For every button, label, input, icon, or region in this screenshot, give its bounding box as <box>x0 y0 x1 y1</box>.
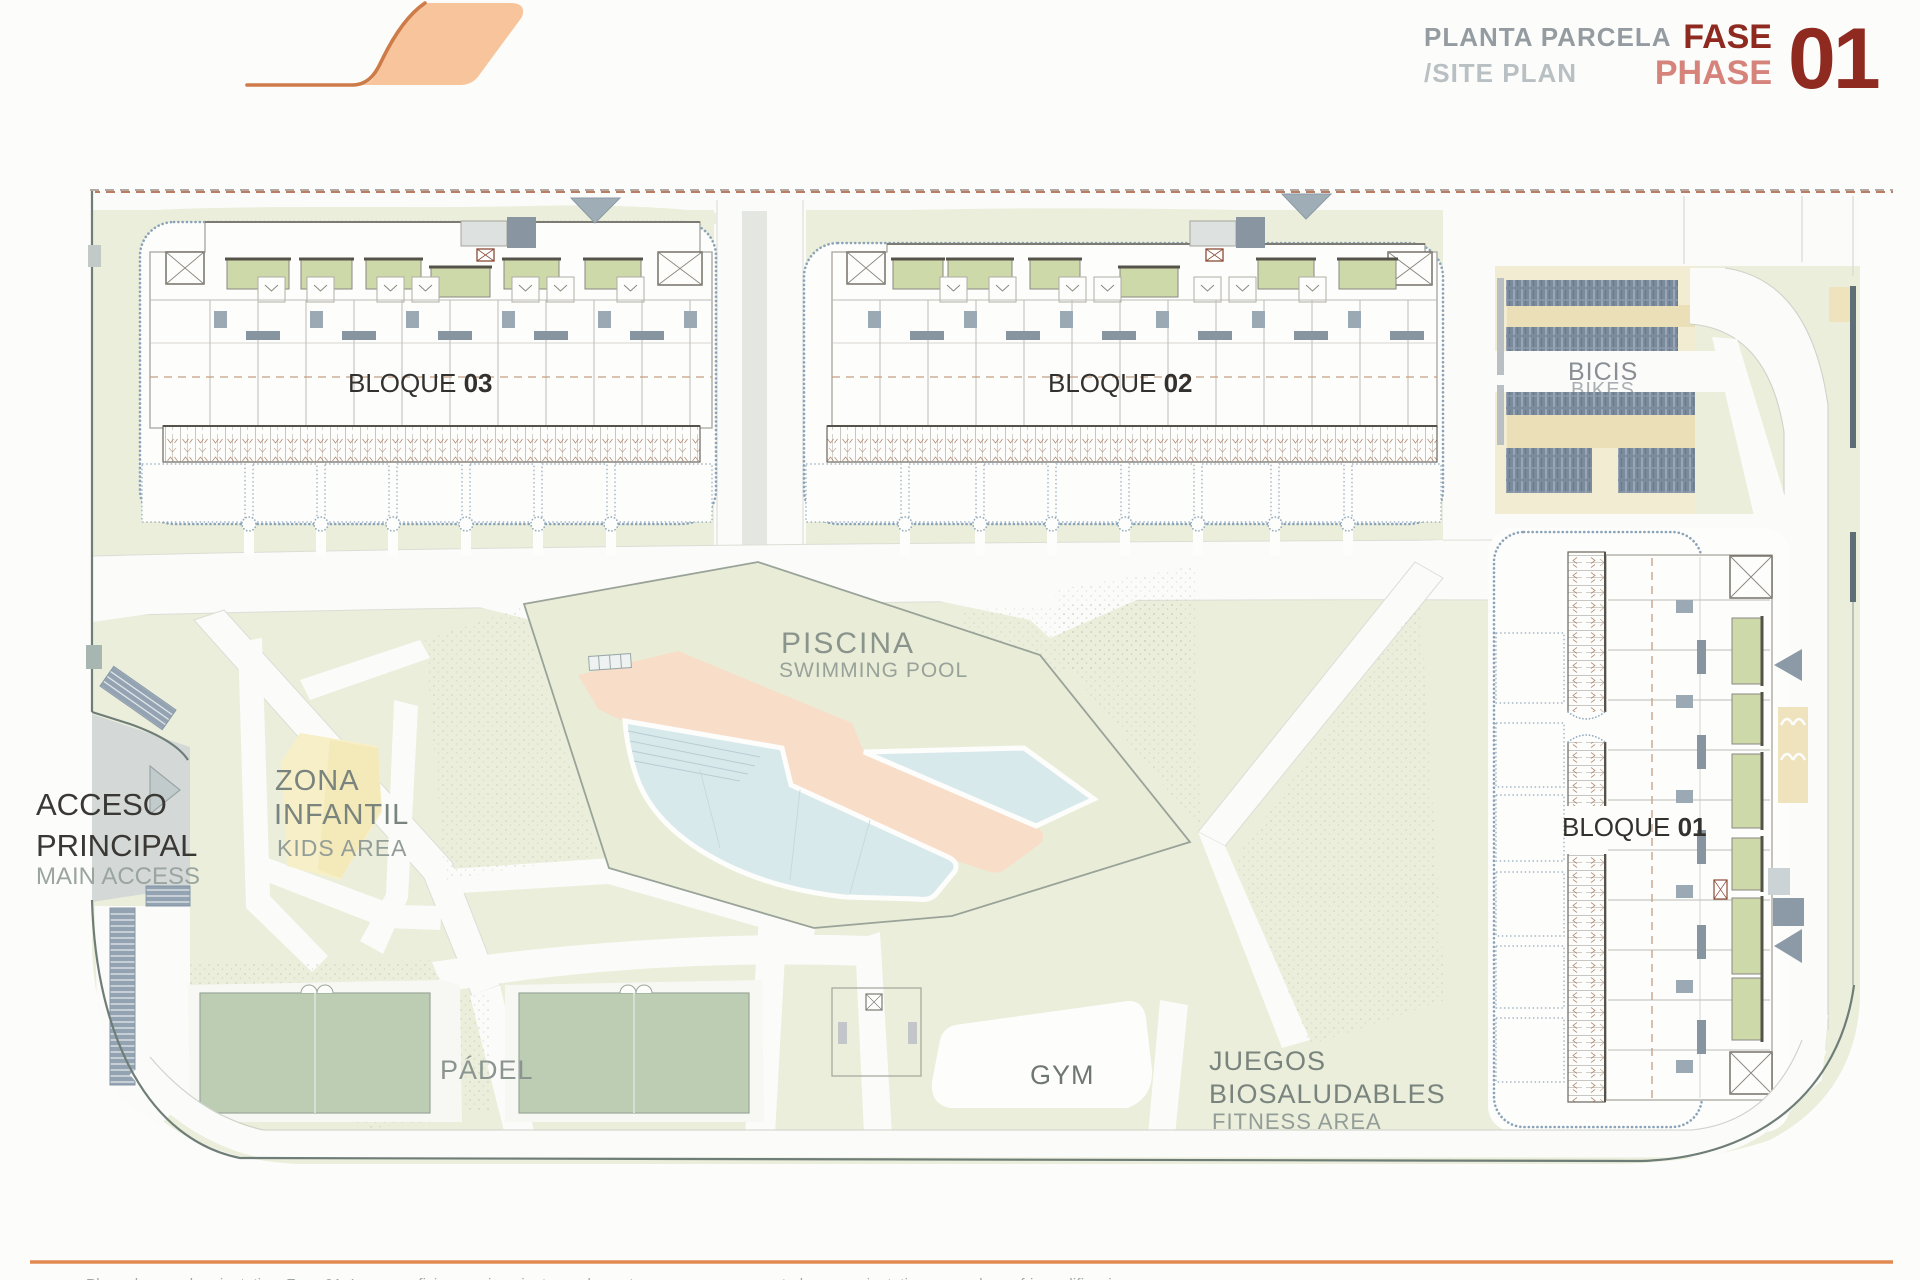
svg-text:ACCESO: ACCESO <box>36 787 167 822</box>
svg-text:PRINCIPAL: PRINCIPAL <box>36 828 197 863</box>
svg-text:01: 01 <box>1788 11 1879 107</box>
svg-text:GYM: GYM <box>1030 1060 1095 1090</box>
svg-text:PÁDEL: PÁDEL <box>440 1055 534 1085</box>
svg-text:PHASE: PHASE <box>1655 54 1772 92</box>
svg-text:PLANTA PARCELA: PLANTA PARCELA <box>1424 22 1672 52</box>
svg-text:BIOSALUDABLES: BIOSALUDABLES <box>1209 1079 1446 1109</box>
svg-text:KIDS AREA: KIDS AREA <box>277 835 407 861</box>
svg-text:Plano de parcela orientativo.: Plano de parcela orientativo. Fase 01. L… <box>86 1276 1149 1280</box>
svg-text:BLOQUE 02: BLOQUE 02 <box>1048 368 1193 398</box>
svg-text:/SITE PLAN: /SITE PLAN <box>1424 58 1577 88</box>
svg-text:INFANTIL: INFANTIL <box>274 799 409 831</box>
svg-text:ZONA: ZONA <box>275 765 360 797</box>
svg-text:JUEGOS: JUEGOS <box>1209 1046 1326 1076</box>
svg-text:BLOQUE 03: BLOQUE 03 <box>348 368 493 398</box>
svg-text:BLOQUE 01: BLOQUE 01 <box>1562 812 1707 842</box>
svg-text:FASE: FASE <box>1683 18 1772 56</box>
svg-text:SWIMMING POOL: SWIMMING POOL <box>779 659 968 682</box>
svg-text:MAIN ACCESS: MAIN ACCESS <box>36 863 200 890</box>
svg-text:PISCINA: PISCINA <box>781 627 915 660</box>
svg-text:BICIS: BICIS <box>1568 358 1638 386</box>
